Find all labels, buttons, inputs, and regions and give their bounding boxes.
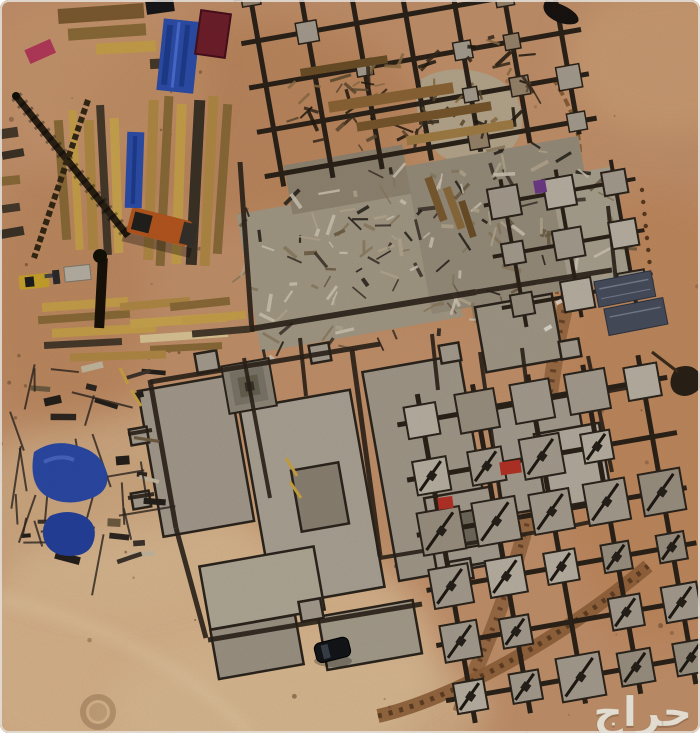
aerial-photo: حراج حراج bbox=[0, 0, 700, 733]
photo-frame: حراج حراج bbox=[0, 0, 700, 733]
photo-grain bbox=[0, 0, 700, 733]
